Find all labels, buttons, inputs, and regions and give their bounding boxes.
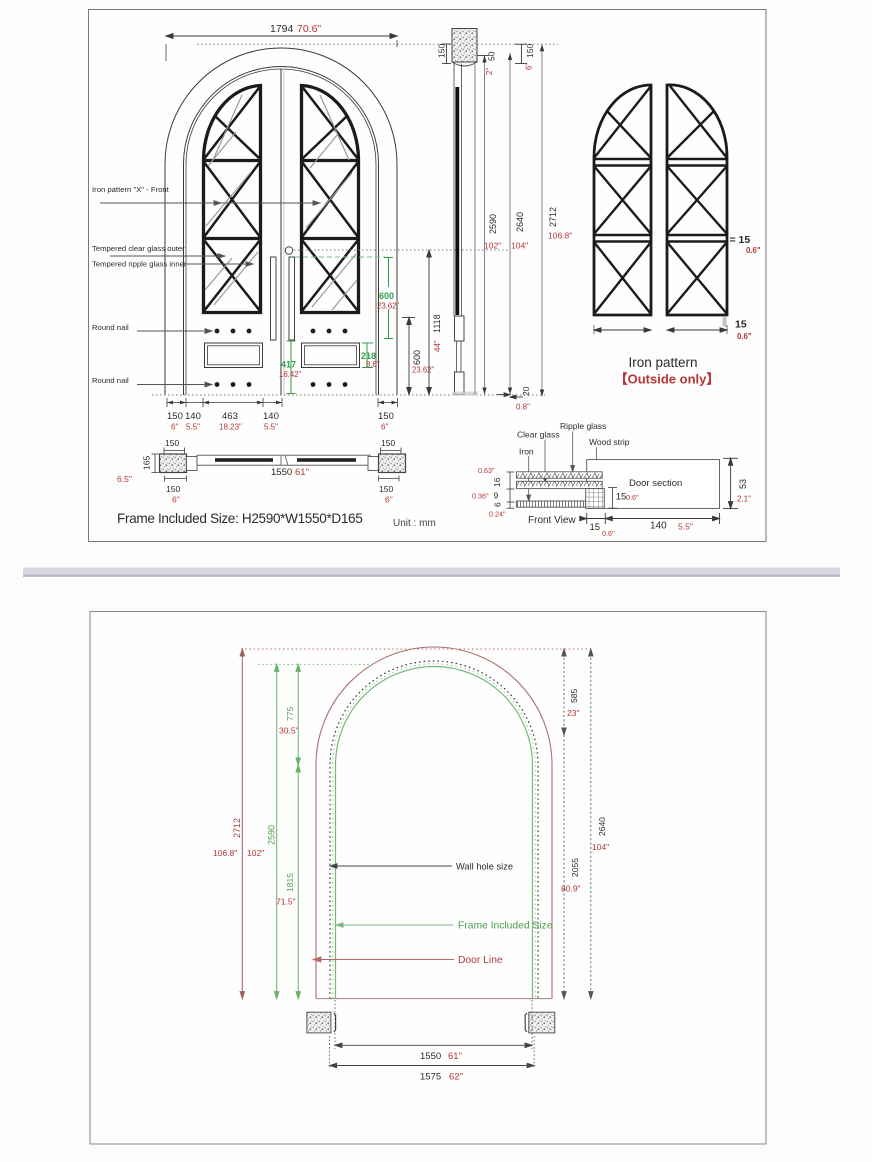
svg-text:2": 2" [485,68,494,75]
svg-text:0.6": 0.6" [746,246,761,255]
svg-text:775: 775 [285,707,295,721]
svg-text:Iron pattern: Iron pattern [628,355,697,370]
svg-text:1815: 1815 [285,873,295,892]
svg-text:1575: 1575 [420,1072,441,1083]
svg-text:23.62": 23.62" [412,366,435,375]
svg-text:150: 150 [381,438,395,448]
svg-text:2640: 2640 [597,817,607,836]
svg-text:585: 585 [569,689,579,703]
svg-text:0.36": 0.36" [472,492,489,501]
svg-text:106.8": 106.8" [213,848,237,858]
svg-text:Unit : mm: Unit : mm [393,518,436,529]
svg-text:140: 140 [263,411,279,422]
svg-text:6": 6" [381,423,388,432]
svg-text:2590: 2590 [488,214,498,234]
svg-text:102": 102" [484,241,501,251]
svg-text:2640: 2640 [515,212,525,232]
svg-text:0.6": 0.6" [737,332,752,341]
svg-text:106.8": 106.8" [548,231,572,241]
svg-text:0.6": 0.6" [602,529,615,538]
svg-text:6": 6" [172,495,180,505]
svg-text:165: 165 [142,456,152,470]
svg-text:150: 150 [437,44,447,58]
svg-text:104": 104" [511,241,528,251]
svg-text:15: 15 [590,522,601,533]
svg-text:70.6": 70.6" [297,23,321,35]
svg-text:6": 6" [525,63,534,70]
svg-text:Round nail: Round nail [92,376,129,385]
svg-text:44": 44" [433,340,442,352]
svg-text:80.9": 80.9" [561,884,581,894]
svg-text:18.23": 18.23" [219,423,242,432]
svg-text:Clear glass: Clear glass [517,430,560,440]
svg-text:20: 20 [521,386,531,396]
svg-text:23.62": 23.62" [377,302,400,311]
svg-text:50: 50 [487,51,497,61]
svg-text:140: 140 [185,411,201,422]
svg-text:Front View: Front View [528,515,576,526]
svg-text:1550: 1550 [420,1051,441,1062]
svg-text:15: 15 [616,492,627,503]
svg-text:Iron pattern "X" - Front: Iron pattern "X" - Front [92,185,170,194]
svg-text:1550: 1550 [271,467,292,478]
svg-text:61": 61" [448,1051,462,1062]
svg-text:Tempered clear glass outer: Tempered clear glass outer [92,244,185,253]
svg-text:1794: 1794 [270,23,294,35]
svg-text:Door Line: Door Line [458,955,503,966]
svg-text:15: 15 [735,319,747,331]
svg-text:Tempered ripple glass inner: Tempered ripple glass inner [92,260,187,269]
svg-text:140: 140 [650,521,667,532]
svg-text:6": 6" [171,423,178,432]
svg-text:【Outside only】: 【Outside only】 [615,372,720,387]
svg-text:53: 53 [738,479,748,489]
svg-text:61": 61" [295,467,309,478]
svg-text:Wall hole size: Wall hole size [456,862,513,872]
svg-text:6: 6 [493,502,503,507]
svg-text:6": 6" [385,495,393,505]
svg-text:104": 104" [592,842,609,852]
svg-text:16.42": 16.42" [279,370,302,379]
svg-text:2712: 2712 [548,207,558,227]
svg-text:8.6": 8.6" [366,360,380,369]
svg-text:Round nail: Round nail [92,323,129,332]
svg-text:30.5": 30.5" [279,726,299,736]
svg-text:2712: 2712 [232,818,242,838]
svg-text:150: 150 [379,484,393,494]
svg-text:150: 150 [378,411,394,422]
svg-text:Frame Included Size: Frame Included Size [458,921,553,932]
svg-text:Door section: Door section [629,478,682,489]
svg-text:0.63": 0.63" [478,466,495,475]
svg-text:0.24": 0.24" [489,510,506,519]
svg-text:102": 102" [247,848,264,858]
svg-text:9: 9 [494,491,499,501]
svg-text:150: 150 [165,438,179,448]
svg-text:Wood strip: Wood strip [589,437,630,447]
svg-text:5.5": 5.5" [186,423,200,432]
svg-text:71.5": 71.5" [276,897,296,907]
svg-text:600: 600 [379,291,394,301]
svg-text:463: 463 [222,411,238,422]
svg-text:62": 62" [449,1072,463,1083]
svg-text:23": 23" [567,708,579,718]
svg-text:Iron: Iron [519,447,534,457]
svg-text:5.5": 5.5" [264,423,278,432]
svg-text:16: 16 [492,477,502,487]
svg-text:150: 150 [167,411,183,422]
svg-text:417: 417 [281,360,296,370]
svg-text:0.8": 0.8" [516,403,530,412]
svg-text:6.5": 6.5" [117,474,132,484]
svg-text:600: 600 [412,350,422,365]
svg-text:1118: 1118 [432,314,442,333]
svg-text:0.6": 0.6" [626,493,639,502]
svg-text:= 15: = 15 [730,234,751,246]
svg-text:150: 150 [166,484,180,494]
svg-text:150: 150 [525,44,535,58]
svg-text:2.1": 2.1" [737,495,751,504]
svg-text:Frame Included Size: H2590*W1: Frame Included Size: H2590*W1550*D165 [117,511,362,526]
svg-text:2055: 2055 [570,858,580,877]
svg-text:2590: 2590 [267,825,277,845]
svg-text:Ripple glass: Ripple glass [560,421,606,431]
svg-text:5.5": 5.5" [678,522,693,532]
